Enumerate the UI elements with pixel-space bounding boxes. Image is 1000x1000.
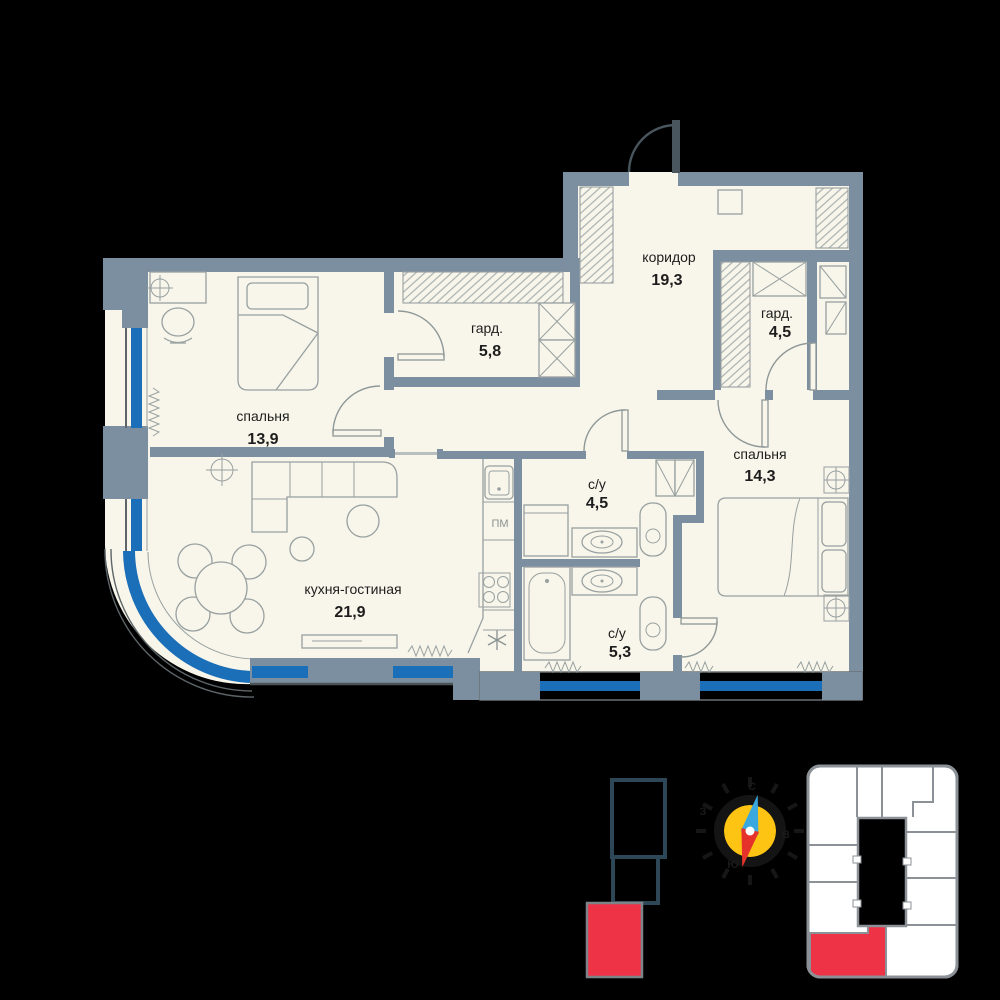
window-kitchen-west [131,499,142,551]
room-label-bathroom-2: с/у [608,625,626,641]
corridor-closet [580,187,613,283]
floor-minimap [808,766,957,977]
electrical-panel [718,190,742,214]
compass-east-label: В [782,829,790,841]
room-area-bedroom-2: 14,3 [744,468,775,485]
room-area-wardrobe-2: 4,5 [769,324,791,341]
room-label-bedroom-2: спальня [733,446,786,462]
room-label-bathroom-1: с/у [588,476,606,492]
window-bathroom2-south [540,681,640,691]
compass-icon: С В Ю З [696,777,804,885]
dishwasher-label: ПМ [491,518,508,530]
room-area-bathroom-2: 5,3 [609,644,631,661]
section-indicator [587,780,665,977]
floor-plan-page: спальня 13,9 гард. 5,8 коридор 19,3 гард… [0,0,1000,1000]
compass-south-label: Ю [727,859,738,871]
room-label-kitchen-living: кухня-гостиная [304,581,401,597]
window-bedroom1 [131,328,142,428]
window-bedroom2-south [700,681,822,691]
corridor-closet-ne [816,188,848,248]
section-block-highlighted [587,903,642,977]
room-label-corridor: коридор [642,249,696,265]
highlighted-unit [810,925,886,977]
room-label-wardrobe-1: гард. [471,320,503,336]
room-area-bathroom-1: 4,5 [586,495,608,512]
courtyard [858,818,906,926]
entry-door-leaf [672,120,680,173]
wardrobe-rail-2 [721,262,750,387]
room-area-kitchen-living: 21,9 [334,604,365,621]
window-kitchen-south-2 [393,666,455,678]
room-label-wardrobe-2: гард. [761,305,793,321]
room-area-corridor: 19,3 [651,272,682,289]
compass-north-label: С [748,781,756,793]
wardrobe-rail-1 [403,272,563,303]
section-block-2 [613,857,658,903]
window-kitchen-south-1 [252,666,308,678]
entry-door-swing [629,125,676,172]
room-area-wardrobe-1: 5,8 [479,343,501,360]
floor-plan: спальня 13,9 гард. 5,8 коридор 19,3 гард… [0,0,1000,1000]
room-label-bedroom-1: спальня [236,408,289,424]
room-area-bedroom-1: 13,9 [247,431,278,448]
compass-west-label: З [700,806,707,818]
section-block-1 [612,780,665,857]
